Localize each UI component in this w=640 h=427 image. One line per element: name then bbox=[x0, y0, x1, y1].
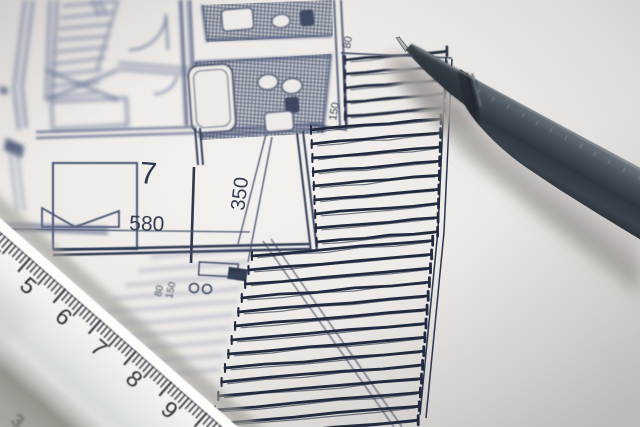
svg-text:7: 7 bbox=[139, 155, 159, 191]
svg-text:80: 80 bbox=[341, 35, 355, 49]
svg-text:350: 350 bbox=[227, 176, 253, 212]
svg-text:580: 580 bbox=[129, 212, 165, 236]
